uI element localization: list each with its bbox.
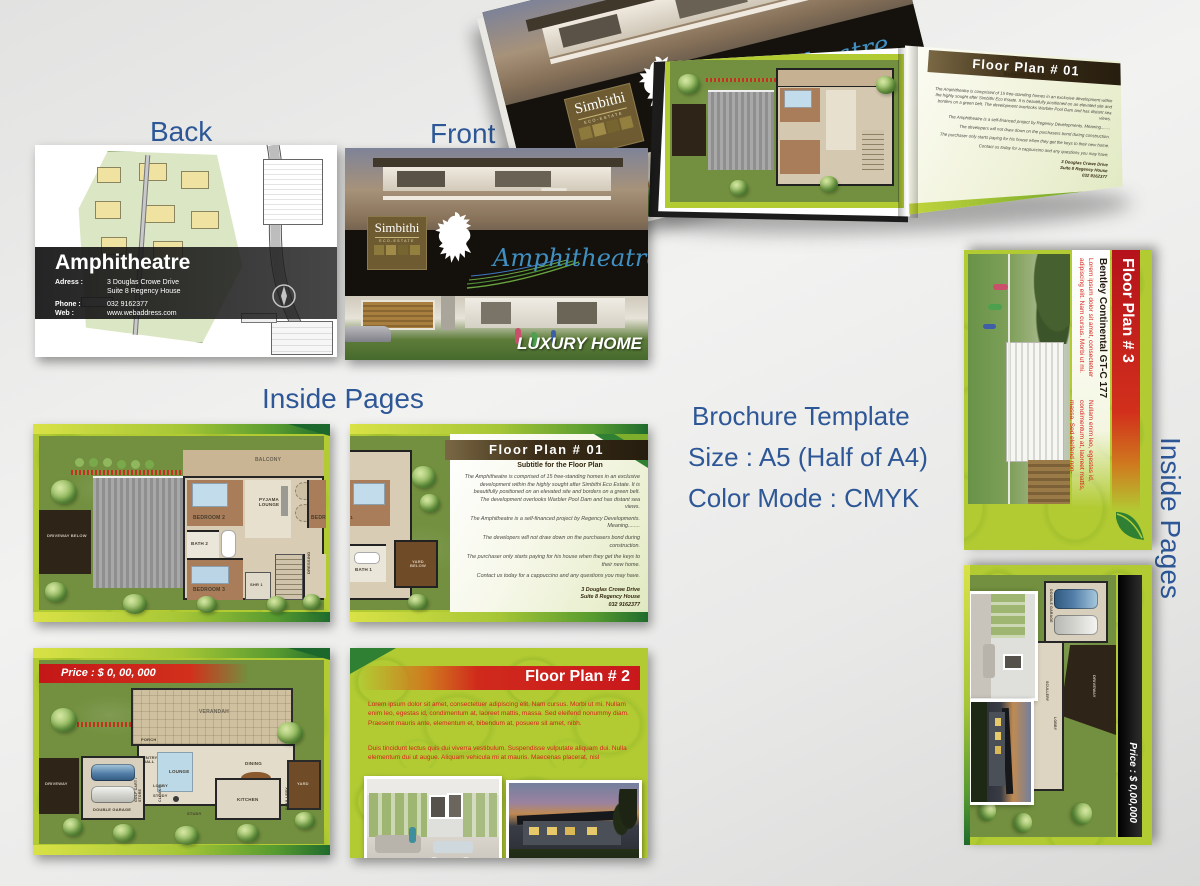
template-title: Brochure Template bbox=[692, 401, 910, 432]
plot-house bbox=[181, 171, 209, 189]
logo-tile-icon bbox=[592, 122, 607, 137]
interior-photo-inset bbox=[968, 591, 1038, 701]
window bbox=[397, 171, 445, 187]
lawn-dark bbox=[509, 849, 639, 858]
tree bbox=[123, 594, 147, 614]
tree bbox=[420, 494, 440, 512]
room-label: DINING bbox=[245, 762, 262, 767]
trees-backdrop bbox=[1028, 254, 1070, 344]
tree bbox=[876, 76, 896, 94]
fp3-car-title: Bentley Continental GT-C 177 bbox=[1097, 258, 1108, 398]
book-right-bottom-strip bbox=[904, 189, 1126, 218]
dressing-room: DRESSING bbox=[303, 554, 326, 598]
paragraph: The purchaser only starts paying for his… bbox=[464, 554, 640, 569]
car-white bbox=[91, 786, 135, 803]
tree bbox=[45, 582, 67, 602]
plot-house bbox=[95, 201, 121, 219]
fp1-body: The Amphitheatre is comprised of 15 free… bbox=[464, 474, 640, 609]
fp2-paragraph-1: Lorem ipsum dolor sit amet, consectetuer… bbox=[368, 700, 636, 728]
price-text: Price : $ 0, 00, 000 bbox=[61, 667, 156, 679]
tree bbox=[303, 594, 321, 610]
child-figure bbox=[983, 324, 996, 329]
window bbox=[481, 302, 511, 324]
glass-table bbox=[433, 841, 473, 853]
balcony bbox=[778, 70, 892, 87]
fp3-header-band: Floor Plan # 3 bbox=[1112, 250, 1140, 512]
front-brand-band: Simbithi ECO-ESTATE Amphitheatre bbox=[345, 230, 648, 296]
yard-below: YARD BELOW bbox=[394, 540, 438, 588]
title-block bbox=[271, 321, 333, 355]
priceb-band: Price : $ 0,00,000 bbox=[1118, 575, 1142, 837]
logo-tile-icon bbox=[578, 126, 593, 141]
logo-tile-icon bbox=[619, 116, 634, 131]
wardrobe bbox=[191, 566, 229, 584]
inside-page-price-rotated: Price : $ 0,00,000 DRIVEWAY DOUBLE GARAG… bbox=[964, 565, 1152, 845]
book-left-plan bbox=[670, 60, 899, 202]
tree bbox=[277, 722, 303, 744]
bathtub bbox=[354, 552, 380, 564]
art-frame bbox=[447, 793, 463, 819]
open-brochure-mockup: Floor Plan # 01 Subtitle for the Floor P… bbox=[650, 42, 1132, 224]
plan-area: DRIVEWAY DOUBLE GARAGE LOBBY SCULLERY KI… bbox=[970, 575, 1116, 837]
plot-house bbox=[145, 205, 175, 223]
inside-pages-side-heading: Inside Pages bbox=[1154, 437, 1186, 599]
logo-tile-icon bbox=[374, 245, 384, 255]
fp1-header-band: Floor Plan # 01 bbox=[445, 440, 648, 460]
tree bbox=[412, 466, 436, 488]
text-panel: Floor Plan # 01 Subtitle for the Floor P… bbox=[450, 434, 648, 612]
tree bbox=[408, 594, 428, 610]
inside-page-floorplan-left: DRIVEWAY BELOW BALCONY BEDROOM 2 PYJAMA … bbox=[33, 424, 330, 622]
garage: DOUBLE GARAGE bbox=[1044, 581, 1108, 643]
bed bbox=[353, 483, 385, 505]
inside-page-fp3-rotated: Floor Plan # 3 Bentley Continental GT-C … bbox=[964, 250, 1152, 550]
timber-deck bbox=[1028, 460, 1070, 504]
tree bbox=[1014, 813, 1032, 833]
driveway: DRIVEWAY bbox=[39, 758, 79, 814]
tree bbox=[63, 818, 83, 836]
address-label: Adress : bbox=[55, 279, 83, 286]
room-label: BEDROOM 1 bbox=[311, 516, 326, 522]
house-plan: BALCONY BEDROOM 2 PYJAMA LOUNGE BEDROOM … bbox=[183, 450, 324, 612]
north-arrow-icon bbox=[271, 283, 297, 309]
sofa bbox=[983, 644, 995, 678]
shower-room: SHR 1 bbox=[245, 572, 271, 600]
room-label: BEDROOM 1 bbox=[350, 516, 353, 521]
car-blue bbox=[91, 764, 135, 781]
lit-windows bbox=[529, 827, 539, 835]
room-label: KITCHEN bbox=[237, 798, 258, 803]
fp1-header: Floor Plan # 01 bbox=[489, 442, 604, 457]
address-line: 032 9162377 bbox=[464, 602, 640, 610]
pillar bbox=[441, 296, 455, 330]
paragraph: Contact us today for a cappuccino and an… bbox=[464, 573, 640, 581]
template-colormode: Color Mode : CMYK bbox=[688, 483, 919, 514]
yard: YARD bbox=[287, 760, 321, 810]
room-label: DRIVEWAY BELOW bbox=[47, 534, 87, 538]
chair bbox=[173, 796, 179, 802]
bed bbox=[784, 90, 812, 108]
garage-roof bbox=[93, 476, 183, 588]
address-line1: 3 Douglas Crowe Drive bbox=[107, 279, 179, 286]
tree bbox=[113, 824, 135, 842]
inside-page-fp2: Floor Plan # 2 Lorem ipsum dolor sit ame… bbox=[350, 648, 648, 858]
tree bbox=[51, 708, 77, 732]
fp3-text-zone: Bentley Continental GT-C 177 Lorem ipsum… bbox=[1072, 250, 1110, 508]
address-line: Suite 8 Regency House bbox=[464, 594, 640, 602]
facade bbox=[523, 821, 621, 845]
room-label: SHR 1 bbox=[250, 583, 263, 587]
logo-tile-icon bbox=[398, 245, 408, 255]
front-cover-card: Simbithi ECO-ESTATE Amphitheatre bbox=[345, 148, 648, 360]
child-figure bbox=[993, 284, 1008, 290]
house-building bbox=[1006, 342, 1064, 462]
child-figure bbox=[988, 304, 1002, 310]
room-label: DOUBLE GARAGE bbox=[1048, 589, 1052, 623]
car bbox=[345, 326, 391, 342]
bedroom bbox=[780, 140, 820, 174]
garage-roof bbox=[708, 90, 774, 170]
flower-bed bbox=[706, 78, 776, 82]
balcony-rail bbox=[383, 196, 611, 200]
price-band: Price : $ 0, 00, 000 bbox=[39, 664, 249, 683]
bedroom-3: BEDROOM 3 bbox=[187, 558, 243, 600]
person-figure bbox=[409, 827, 416, 843]
fp3-col2: Nullam enim leo, egestas id, condimentum… bbox=[1067, 400, 1095, 500]
logo-tile-icon bbox=[410, 245, 420, 255]
phone-label: Phone : bbox=[55, 301, 81, 308]
front-tagline: LUXURY HOME bbox=[517, 334, 642, 354]
window bbox=[557, 302, 597, 324]
inside-page-fp1: BEDROOM 1 BATH 1 YARD BELOW Floor Plan #… bbox=[350, 424, 648, 622]
address-line: 3 Douglas Crowe Drive bbox=[464, 587, 640, 595]
tree bbox=[267, 596, 287, 613]
simbithi-logo-subtitle: ECO-ESTATE bbox=[375, 237, 419, 243]
room-label: ENTRY HALL bbox=[143, 756, 159, 765]
fp3-house-photo bbox=[968, 254, 1070, 504]
room-label: DRESSING bbox=[307, 552, 311, 575]
room-label: VERANDAH bbox=[199, 710, 229, 716]
room-label: GOLF CART / STORE bbox=[135, 772, 143, 802]
back-heading: Back bbox=[150, 116, 212, 148]
front-heading: Front bbox=[430, 118, 495, 150]
back-info-band: Amphitheatre Adress : 3 Douglas Crowe Dr… bbox=[35, 247, 337, 319]
tree bbox=[295, 812, 315, 829]
room-label: BATH 2 bbox=[191, 542, 208, 547]
window bbox=[495, 171, 551, 187]
bath-2: BATH 2 bbox=[187, 530, 219, 558]
logo-tile-icon bbox=[386, 245, 396, 255]
plan-area: DRIVEWAY BELOW BALCONY BEDROOM 2 PYJAMA … bbox=[39, 436, 324, 610]
plot-house bbox=[97, 167, 121, 183]
web-label: Web : bbox=[55, 310, 74, 317]
book-right-page: Floor Plan # 01 Subtitle for the Floor P… bbox=[905, 42, 1127, 218]
umbrella bbox=[541, 188, 567, 191]
tree bbox=[175, 826, 199, 845]
tree bbox=[730, 180, 748, 196]
brochure-presentation-canvas: Back Front Inside Pages Brochure Templat… bbox=[0, 0, 1200, 886]
driveway bbox=[672, 104, 706, 156]
paragraph: The Amphitheatre is comprised of 15 free… bbox=[464, 474, 640, 512]
back-cover-card: Amphitheatre Adress : 3 Douglas Crowe Dr… bbox=[35, 145, 337, 357]
bathtub bbox=[221, 530, 236, 558]
tree bbox=[820, 176, 838, 192]
room-label: DRIVEWAY bbox=[45, 782, 68, 786]
simbithi-logo: Simbithi ECO-ESTATE bbox=[564, 83, 644, 158]
book-fp1-body: The Amphitheatre is comprised of 15 free… bbox=[929, 86, 1112, 180]
stairs bbox=[862, 130, 884, 170]
book-left-page bbox=[653, 44, 910, 220]
fp3-col1: Lorem ipsum dolor sit amet, consectetuer… bbox=[1076, 258, 1095, 390]
inside-pages-heading: Inside Pages bbox=[262, 383, 424, 415]
room-label: BALCONY bbox=[255, 458, 281, 464]
room-label: STUDY bbox=[187, 812, 202, 816]
interior-photo bbox=[364, 776, 502, 858]
bath-1: BATH 1 bbox=[350, 544, 386, 582]
book-spine-shadow bbox=[898, 46, 918, 218]
tree bbox=[51, 480, 77, 504]
car-blue bbox=[1054, 589, 1098, 609]
room-label: SCULLERY bbox=[1044, 681, 1048, 701]
priceb-text: Price : $ 0,00,000 bbox=[1127, 742, 1138, 823]
fp2-paragraph-2: Duis tincidunt lectus quis dui viverra v… bbox=[368, 744, 636, 763]
bed bbox=[192, 483, 228, 507]
web-value: www.webaddress.com bbox=[107, 310, 177, 317]
window-wall bbox=[369, 793, 427, 837]
art-frame bbox=[429, 795, 447, 819]
driveway: DRIVEWAY bbox=[1060, 645, 1116, 735]
tree bbox=[237, 824, 259, 842]
art-frame bbox=[1003, 654, 1023, 670]
tree bbox=[678, 74, 700, 94]
front-script-name: Amphitheatre bbox=[493, 244, 648, 272]
room-label: BATH 1 bbox=[355, 568, 372, 573]
lawn-dark bbox=[971, 702, 987, 802]
phone-value: 032 9162377 bbox=[107, 301, 148, 308]
driveway: DRIVEWAY BELOW bbox=[39, 510, 91, 574]
fp2-header-band: Floor Plan # 2 bbox=[360, 666, 640, 690]
inside-page-price-plan: Price : $ 0, 00, 000 VERANDAH LOUNGE DIN… bbox=[33, 648, 330, 855]
exterior-photo bbox=[506, 780, 642, 858]
stairs bbox=[275, 554, 303, 600]
bedroom-1-cut: BEDROOM 1 bbox=[307, 480, 326, 528]
address-line2: Suite 8 Regency House bbox=[107, 288, 181, 295]
tree bbox=[1072, 803, 1092, 825]
room-label: BEDROOM 3 bbox=[193, 588, 225, 594]
tree bbox=[197, 596, 217, 613]
room-label: LOBBY bbox=[1052, 717, 1056, 730]
kitchen: KITCHEN bbox=[215, 778, 281, 820]
back-title: Amphitheatre bbox=[55, 251, 190, 275]
exterior-photo-inset bbox=[968, 699, 1034, 805]
plan-area-continuation: BEDROOM 1 BATH 1 YARD BELOW bbox=[350, 436, 450, 610]
sofa bbox=[281, 486, 288, 516]
plan-area: Price : $ 0, 00, 000 VERANDAH LOUNGE DIN… bbox=[39, 660, 324, 844]
room-label: YARD BELOW bbox=[404, 560, 432, 569]
fp2-header: Floor Plan # 2 bbox=[525, 668, 630, 686]
bedroom-2: BEDROOM 2 bbox=[187, 480, 243, 526]
palm-silhouette bbox=[611, 789, 637, 849]
room-label: YARD bbox=[297, 782, 309, 786]
logo-tile-icon bbox=[606, 119, 621, 134]
fp3-header: Floor Plan # 3 bbox=[1118, 258, 1136, 363]
window-wall bbox=[991, 594, 1025, 638]
simbithi-logo-title: Simbithi bbox=[368, 220, 426, 236]
bedroom-1: BEDROOM 1 bbox=[350, 480, 390, 526]
paragraph: The developers will not draw down on the… bbox=[464, 535, 640, 550]
template-size: Size : A5 (Half of A4) bbox=[688, 442, 928, 473]
simbithi-logo: Simbithi ECO-ESTATE bbox=[367, 216, 427, 270]
room-label: CLOAKS bbox=[159, 786, 163, 802]
room-label: LOUNGE bbox=[169, 770, 189, 775]
pyjama-lounge: PYJAMA LOUNGE bbox=[245, 480, 291, 538]
lounge bbox=[826, 90, 856, 150]
window-wall bbox=[463, 793, 497, 837]
fence-line bbox=[1008, 254, 1010, 504]
book-left-page-margin bbox=[665, 54, 904, 208]
shrub-row bbox=[75, 458, 84, 467]
leaf-icon bbox=[1112, 508, 1146, 544]
room-label: PORCH bbox=[141, 738, 156, 742]
room-label: BEDROOM 2 bbox=[193, 516, 225, 522]
erf-schedule-table bbox=[263, 159, 323, 225]
lit-windows bbox=[995, 718, 1001, 726]
room-label: DRIVEWAY bbox=[1092, 675, 1096, 698]
roof bbox=[373, 158, 623, 167]
flower-bed bbox=[71, 470, 181, 475]
front-bottom-photo: LUXURY HOME bbox=[345, 296, 648, 360]
paragraph: The Amphitheatre is a self-financed proj… bbox=[464, 516, 640, 531]
car-white bbox=[1054, 615, 1098, 635]
fp1-subtitle: Subtitle for the Floor Plan bbox=[480, 462, 640, 469]
room-label: DOUBLE GARAGE bbox=[93, 808, 131, 812]
